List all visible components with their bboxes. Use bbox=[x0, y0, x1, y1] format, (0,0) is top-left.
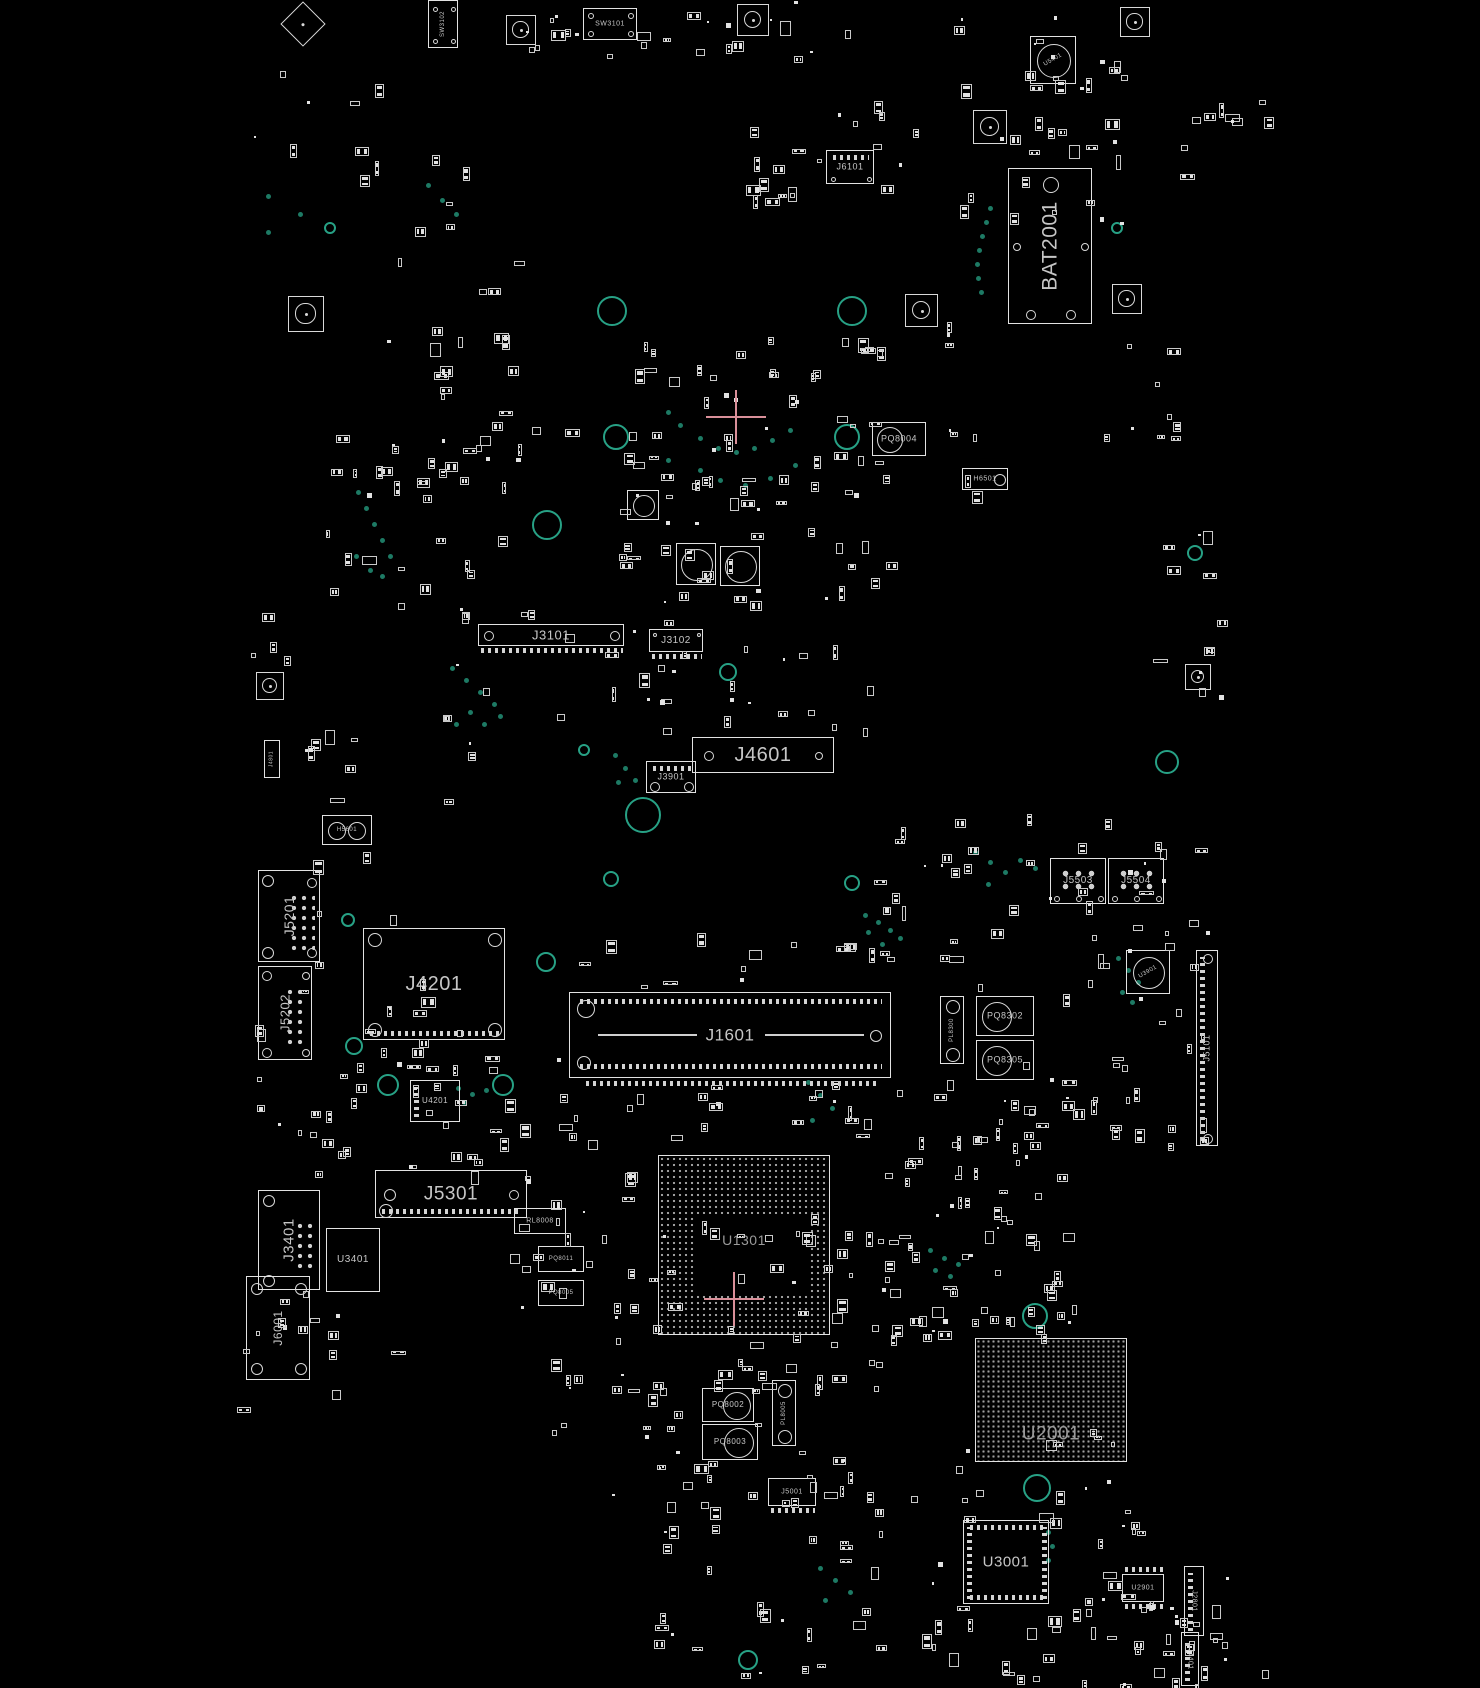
passive-component bbox=[1088, 980, 1093, 988]
component-j6101[interactable]: J6101 bbox=[826, 150, 874, 184]
passive-pad bbox=[1106, 825, 1110, 827]
passive-component bbox=[559, 1288, 567, 1299]
passive-component bbox=[636, 494, 639, 497]
passive-pad bbox=[748, 187, 751, 193]
passive-component bbox=[505, 1099, 516, 1113]
passive-pad bbox=[476, 1161, 478, 1165]
passive-component bbox=[1107, 1636, 1117, 1640]
passive-component bbox=[808, 710, 815, 716]
passive-pad bbox=[850, 565, 852, 568]
passive-pad bbox=[344, 437, 347, 441]
passive-pad bbox=[912, 1319, 915, 1323]
component-sw3102[interactable]: SW3102 bbox=[428, 0, 458, 48]
passive-component bbox=[535, 45, 540, 51]
passive-component bbox=[660, 1613, 666, 1624]
passive-component bbox=[1157, 435, 1165, 439]
passive-component bbox=[891, 1335, 897, 1346]
passive-component bbox=[643, 1426, 651, 1430]
component-label: PQ8003 bbox=[714, 1438, 746, 1446]
passive-pad bbox=[466, 562, 468, 565]
passive-component bbox=[1036, 39, 1044, 44]
component-pq8011[interactable]: PQ8011 bbox=[538, 1246, 584, 1272]
component-pq8302[interactable]: PQ8302 bbox=[976, 996, 1034, 1036]
component-h5601[interactable]: H5601 bbox=[322, 815, 372, 845]
passive-pad bbox=[627, 460, 633, 463]
component-pq8305[interactable]: PQ8305 bbox=[976, 1040, 1034, 1080]
passive-component bbox=[1024, 1132, 1034, 1140]
component-j5301[interactable]: J5301 bbox=[375, 1170, 527, 1218]
passive-pad bbox=[780, 713, 782, 716]
passive-pad bbox=[655, 457, 657, 458]
screw-mount-dot bbox=[1134, 21, 1137, 24]
passive-component bbox=[968, 193, 974, 203]
passive-pad bbox=[813, 488, 817, 490]
passive-component bbox=[1217, 620, 1228, 627]
passive-pad bbox=[1092, 1433, 1096, 1435]
passive-component bbox=[622, 1197, 635, 1202]
pin-hole bbox=[588, 13, 594, 19]
passive-component bbox=[958, 1197, 962, 1209]
passive-pad bbox=[345, 1075, 347, 1077]
passive-component bbox=[977, 1137, 988, 1143]
component-pq8002[interactable]: PQ8002 bbox=[702, 1388, 754, 1422]
passive-component bbox=[667, 1270, 676, 1275]
passive-component bbox=[1195, 1684, 1199, 1688]
key-notch-line bbox=[765, 1034, 864, 1036]
via-dot bbox=[818, 1566, 823, 1571]
passive-pad bbox=[414, 1093, 417, 1096]
passive-component bbox=[910, 1318, 923, 1326]
passive-component bbox=[695, 522, 699, 526]
passive-component bbox=[1180, 1618, 1188, 1628]
passive-pad bbox=[738, 353, 740, 357]
passive-component bbox=[908, 1243, 913, 1251]
passive-pad bbox=[353, 1105, 356, 1107]
passive-pad bbox=[742, 353, 744, 357]
component-j4801[interactable]: J4801 bbox=[264, 740, 280, 778]
passive-pad bbox=[772, 1266, 775, 1271]
passive-pad bbox=[842, 1488, 843, 1490]
passive-pad bbox=[865, 1136, 868, 1137]
passive-component bbox=[732, 41, 744, 52]
passive-pad bbox=[937, 1630, 941, 1633]
passive-pad bbox=[1013, 1102, 1017, 1104]
passive-component bbox=[555, 15, 558, 18]
passive-pad bbox=[1058, 89, 1064, 92]
component-pq8004[interactable]: PQ8004 bbox=[872, 422, 926, 456]
passive-pad bbox=[697, 482, 699, 484]
passive-pad bbox=[887, 908, 889, 912]
passive-component bbox=[1113, 140, 1118, 145]
passive-component bbox=[811, 373, 816, 382]
passive-component bbox=[1041, 1334, 1047, 1344]
pin-hole bbox=[509, 1190, 519, 1200]
passive-pad bbox=[553, 1367, 559, 1370]
passive-component bbox=[825, 597, 827, 599]
passive-component bbox=[932, 1330, 935, 1333]
passive-component bbox=[620, 509, 631, 515]
component-label: J3901 bbox=[657, 773, 684, 782]
component-label: PQ8302 bbox=[987, 1012, 1023, 1021]
passive-pad bbox=[652, 351, 654, 353]
passive-pad bbox=[280, 1324, 284, 1326]
passive-component bbox=[557, 714, 565, 721]
pin-hole bbox=[251, 1363, 263, 1375]
passive-pad bbox=[553, 32, 556, 38]
passive-component bbox=[310, 1132, 317, 1138]
passive-component bbox=[832, 1313, 843, 1324]
passive-pad bbox=[716, 1387, 721, 1390]
passive-component bbox=[1259, 100, 1266, 105]
pin-hole bbox=[451, 39, 456, 44]
passive-pad bbox=[636, 558, 639, 559]
passive-pad bbox=[396, 490, 399, 493]
passive-pad bbox=[887, 1263, 893, 1265]
passive-component bbox=[606, 940, 617, 954]
passive-pad bbox=[665, 39, 667, 40]
passive-component bbox=[770, 369, 776, 378]
passive-component bbox=[1086, 1609, 1092, 1617]
passive-component bbox=[799, 1451, 806, 1455]
passive-pad bbox=[868, 1494, 872, 1496]
component-pq8003[interactable]: PQ8003 bbox=[702, 1424, 758, 1460]
passive-pad bbox=[651, 1279, 653, 1280]
pin-hole bbox=[1043, 177, 1059, 193]
passive-pad bbox=[885, 481, 889, 483]
passive-pad bbox=[442, 539, 444, 542]
passive-pad bbox=[850, 1474, 852, 1477]
passive-component bbox=[837, 1249, 848, 1259]
passive-component bbox=[845, 490, 853, 495]
pin-row bbox=[580, 999, 882, 1004]
passive-component bbox=[574, 1375, 583, 1384]
via-dot bbox=[454, 212, 459, 217]
passive-pad bbox=[906, 1183, 908, 1185]
component-u3001[interactable]: U3001 bbox=[963, 1520, 1049, 1604]
passive-component bbox=[413, 1085, 419, 1098]
passive-component bbox=[1112, 1057, 1124, 1061]
passive-component bbox=[456, 664, 458, 666]
passive-component bbox=[444, 716, 450, 721]
passive-pad bbox=[618, 1388, 620, 1392]
passive-pad bbox=[317, 1173, 319, 1177]
passive-pad bbox=[1135, 1097, 1138, 1100]
passive-component bbox=[351, 1098, 357, 1109]
component-j1601[interactable]: J1601 bbox=[569, 992, 891, 1078]
passive-pad bbox=[749, 502, 752, 506]
passive-component bbox=[770, 1264, 784, 1273]
passive-pad bbox=[974, 493, 980, 496]
component-j5201[interactable]: J5201 bbox=[258, 870, 320, 962]
passive-component bbox=[869, 1360, 875, 1366]
passive-pad bbox=[1117, 1583, 1120, 1589]
component-u3401[interactable]: U3401 bbox=[326, 1228, 380, 1292]
passive-pad bbox=[352, 767, 354, 771]
passive-pad bbox=[1195, 965, 1197, 969]
passive-pad bbox=[959, 1608, 962, 1610]
passive-pad bbox=[925, 1335, 927, 1339]
passive-component bbox=[932, 1307, 944, 1318]
passive-component bbox=[1073, 1609, 1081, 1622]
passive-pad bbox=[731, 688, 733, 690]
passive-pad bbox=[1212, 115, 1215, 119]
passive-component bbox=[961, 18, 963, 20]
passive-component bbox=[683, 1482, 693, 1490]
passive-pad bbox=[1080, 850, 1085, 852]
component-j3901[interactable]: J3901 bbox=[646, 761, 696, 793]
passive-component bbox=[1050, 1078, 1054, 1082]
passive-component bbox=[832, 724, 837, 731]
component-label: J5201 bbox=[282, 896, 296, 937]
component-j5503[interactable]: J5503 bbox=[1050, 858, 1106, 904]
passive-pad bbox=[1007, 1322, 1008, 1324]
passive-pad bbox=[1019, 1677, 1023, 1679]
passive-pad bbox=[756, 166, 759, 169]
passive-pad bbox=[942, 957, 944, 961]
passive-pad bbox=[543, 1284, 546, 1290]
passive-component bbox=[1105, 119, 1120, 130]
passive-component bbox=[1108, 1581, 1123, 1591]
passive-pad bbox=[918, 1319, 921, 1323]
component-j5504[interactable]: J5504 bbox=[1108, 858, 1164, 904]
component-pl8300[interactable]: PL8300 bbox=[940, 996, 964, 1064]
passive-pad bbox=[829, 1267, 831, 1271]
passive-pad bbox=[834, 1086, 838, 1088]
passive-component bbox=[1033, 1676, 1040, 1682]
mount-hole bbox=[532, 510, 562, 540]
passive-pad bbox=[637, 379, 643, 382]
passive-component bbox=[494, 333, 509, 344]
passive-component bbox=[973, 434, 977, 442]
passive-component bbox=[565, 1233, 571, 1247]
passive-component bbox=[811, 1214, 819, 1225]
passive-pad bbox=[320, 1173, 322, 1177]
passive-pad bbox=[757, 1390, 759, 1392]
via-dot bbox=[876, 920, 881, 925]
passive-pad bbox=[1170, 1653, 1173, 1655]
passive-pad bbox=[936, 1096, 939, 1100]
passive-pad bbox=[282, 1300, 284, 1303]
passive-component bbox=[602, 1235, 607, 1244]
passive-pad bbox=[576, 1377, 578, 1382]
passive-component bbox=[1098, 954, 1104, 969]
passive-pad bbox=[666, 622, 668, 625]
passive-component bbox=[445, 462, 458, 472]
passive-component bbox=[326, 1111, 332, 1123]
passive-component bbox=[328, 1331, 339, 1340]
passive-pad bbox=[1105, 436, 1108, 438]
passive-component bbox=[878, 1239, 884, 1244]
passive-component bbox=[1167, 348, 1181, 355]
passive-component bbox=[446, 202, 453, 206]
passive-pad bbox=[882, 1647, 884, 1650]
passive-component bbox=[305, 749, 309, 753]
passive-pad bbox=[963, 93, 969, 96]
passive-component bbox=[423, 495, 432, 503]
passive-pad bbox=[838, 948, 841, 951]
passive-pad bbox=[706, 404, 708, 407]
passive-component bbox=[845, 30, 851, 39]
component-j3401[interactable]: J3401 bbox=[258, 1190, 320, 1290]
passive-pad bbox=[1045, 1657, 1048, 1662]
passive-component bbox=[753, 195, 758, 209]
component-label: H6501 bbox=[973, 476, 996, 483]
passive-pad bbox=[729, 561, 732, 564]
pin-hole bbox=[433, 39, 438, 44]
passive-pad bbox=[892, 1342, 895, 1344]
passive-component bbox=[483, 688, 490, 696]
pin-hole bbox=[262, 971, 272, 981]
pin-hole bbox=[1081, 243, 1089, 251]
passive-pad bbox=[1176, 350, 1179, 354]
passive-pad bbox=[441, 471, 445, 473]
passive-component bbox=[710, 375, 717, 381]
passive-pad bbox=[367, 1031, 369, 1033]
passive-pad bbox=[813, 1538, 815, 1542]
via-dot bbox=[880, 942, 885, 947]
passive-component bbox=[902, 906, 906, 921]
passive-component bbox=[301, 990, 309, 994]
passive-pad bbox=[1061, 1314, 1063, 1318]
passive-component bbox=[1000, 137, 1004, 141]
passive-component bbox=[391, 1351, 406, 1355]
passive-component bbox=[724, 716, 731, 728]
passive-component bbox=[624, 453, 635, 465]
passive-pad bbox=[1011, 911, 1017, 913]
component-j3102[interactable]: J3102 bbox=[649, 629, 703, 652]
passive-component bbox=[808, 528, 815, 537]
passive-component bbox=[938, 1331, 952, 1340]
component-sw3101[interactable]: SW3101 bbox=[583, 8, 637, 40]
component-j3101[interactable]: J3101 bbox=[478, 624, 624, 646]
passive-component bbox=[455, 1100, 467, 1106]
passive-pad bbox=[704, 482, 708, 484]
passive-component bbox=[1121, 75, 1128, 81]
passive-component bbox=[985, 1231, 994, 1244]
passive-component bbox=[981, 1307, 988, 1314]
passive-pad bbox=[886, 953, 888, 955]
passive-component bbox=[780, 21, 791, 36]
passive-component bbox=[702, 477, 710, 486]
passive-pad bbox=[632, 1310, 637, 1312]
component-body-circle bbox=[778, 1430, 792, 1444]
passive-pad bbox=[328, 1113, 331, 1116]
passive-pad bbox=[1137, 1137, 1143, 1140]
passive-component bbox=[351, 738, 358, 742]
passive-component bbox=[786, 1364, 797, 1373]
component-j5202[interactable]: J5202 bbox=[258, 966, 312, 1060]
component-label: J2801 bbox=[1191, 1590, 1198, 1612]
passive-component bbox=[630, 1304, 639, 1314]
component-j4201[interactable]: J4201 bbox=[363, 928, 505, 1040]
component-u3901[interactable]: U3901 bbox=[1126, 950, 1170, 994]
passive-component bbox=[628, 1269, 635, 1279]
passive-component bbox=[873, 144, 882, 150]
component-label: U3001 bbox=[983, 1555, 1030, 1570]
passive-pad bbox=[651, 457, 653, 458]
screw-mount-dot bbox=[305, 313, 308, 316]
passive-pad bbox=[1100, 1545, 1102, 1547]
passive-pad bbox=[759, 535, 762, 539]
pin-row bbox=[382, 1209, 522, 1214]
passive-pad bbox=[1224, 621, 1226, 625]
passive-component bbox=[1262, 1670, 1269, 1679]
passive-component bbox=[1052, 210, 1057, 215]
via-dot bbox=[266, 230, 271, 235]
pin-hole bbox=[384, 1189, 396, 1201]
component-u1301[interactable]: U1301 bbox=[658, 1155, 830, 1335]
passive-component bbox=[451, 1152, 462, 1162]
passive-pad bbox=[995, 1209, 999, 1212]
passive-component bbox=[853, 1621, 866, 1630]
passive-pad bbox=[504, 490, 505, 493]
passive-pad bbox=[761, 187, 767, 190]
passive-component bbox=[440, 366, 453, 377]
passive-pad bbox=[261, 1107, 263, 1111]
passive-pad bbox=[613, 697, 614, 700]
passive-pad bbox=[1029, 1313, 1033, 1315]
passive-component bbox=[995, 1270, 1001, 1276]
component-label: SW3102 bbox=[440, 11, 446, 37]
passive-pad bbox=[882, 881, 885, 883]
passive-pad bbox=[515, 369, 517, 375]
passive-pad bbox=[966, 870, 970, 872]
passive-component bbox=[758, 1371, 767, 1381]
passive-component bbox=[956, 1466, 963, 1474]
pin-hole bbox=[697, 633, 701, 637]
passive-component bbox=[345, 765, 356, 773]
passive-component bbox=[899, 163, 903, 167]
passive-pad bbox=[970, 848, 972, 852]
passive-pad bbox=[1137, 1131, 1143, 1134]
passive-pad bbox=[1017, 137, 1019, 143]
passive-pad bbox=[952, 941, 954, 943]
passive-pad bbox=[810, 530, 814, 532]
passive-component bbox=[1204, 113, 1216, 121]
passive-component bbox=[862, 1608, 871, 1616]
passive-pad bbox=[1059, 1444, 1061, 1446]
component-bat2001[interactable]: BAT2001 bbox=[1008, 168, 1092, 324]
passive-component bbox=[962, 1498, 968, 1503]
passive-component bbox=[1100, 217, 1104, 221]
passive-pad bbox=[435, 1088, 439, 1090]
passive-component bbox=[1166, 1634, 1171, 1645]
passive-pad bbox=[1043, 1336, 1046, 1338]
passive-pad bbox=[1088, 910, 1092, 913]
passive-pad bbox=[957, 821, 959, 826]
passive-component bbox=[655, 1625, 669, 1631]
passive-pad bbox=[752, 134, 757, 136]
passive-pad bbox=[800, 150, 803, 152]
passive-pad bbox=[1176, 569, 1179, 574]
passive-pad bbox=[921, 1139, 923, 1142]
passive-pad bbox=[1058, 1500, 1063, 1503]
passive-component bbox=[663, 1544, 672, 1554]
fiducial-crosshair bbox=[704, 1298, 764, 1300]
passive-pad bbox=[1028, 821, 1030, 824]
passive-pad bbox=[1136, 1524, 1138, 1528]
passive-component bbox=[649, 1278, 658, 1282]
passive-component bbox=[807, 1475, 813, 1479]
mount-hole bbox=[377, 1074, 399, 1096]
passive-component bbox=[708, 1461, 718, 1467]
component-j4601[interactable]: J4601 bbox=[692, 737, 834, 773]
passive-pad bbox=[535, 1256, 537, 1260]
passive-pad bbox=[847, 1237, 851, 1239]
passive-component bbox=[702, 1221, 707, 1235]
via-dot bbox=[752, 446, 757, 451]
passive-component bbox=[1167, 414, 1172, 420]
